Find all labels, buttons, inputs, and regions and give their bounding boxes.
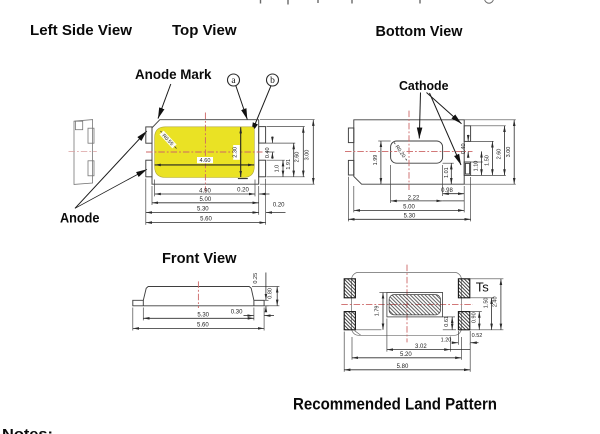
svg-text:1.79: 1.79 [375, 306, 381, 317]
svg-text:0.30: 0.30 [231, 309, 243, 315]
svg-text:4.90: 4.90 [199, 188, 211, 194]
svg-text:0.25: 0.25 [253, 273, 259, 284]
svg-text:5.00: 5.00 [200, 197, 212, 203]
svg-text:0.90: 0.90 [472, 312, 478, 323]
svg-text:1.50: 1.50 [483, 298, 489, 309]
svg-text:1.99: 1.99 [373, 155, 379, 166]
svg-text:0.20: 0.20 [273, 202, 285, 208]
svg-text:5.60: 5.60 [197, 323, 209, 329]
svg-text:Ts: Ts [476, 279, 490, 294]
svg-text:5.00: 5.00 [403, 205, 415, 211]
svg-text:5.30: 5.30 [197, 207, 209, 213]
svg-text:1.0: 1.0 [275, 165, 281, 173]
svg-text:Left Side View: Left Side View [30, 22, 132, 39]
svg-text:0.61: 0.61 [444, 316, 450, 327]
svg-text:5.30: 5.30 [404, 214, 416, 220]
svg-text:3.00: 3.00 [305, 150, 311, 161]
svg-text:1.50: 1.50 [484, 155, 490, 166]
svg-text:Recommended Land Pattern: Recommended Land Pattern [293, 395, 497, 413]
svg-text:Anode Mark: Anode Mark [135, 67, 212, 82]
svg-text:Cathode: Cathode [399, 78, 449, 93]
svg-text:5.30: 5.30 [197, 313, 209, 319]
svg-text:5.20: 5.20 [400, 352, 412, 358]
svg-text:0.52: 0.52 [472, 333, 483, 339]
svg-text:Top View: Top View [172, 22, 237, 39]
svg-text:0.98: 0.98 [441, 188, 453, 194]
svg-text:1.10: 1.10 [474, 161, 480, 172]
svg-text:Bottom View: Bottom View [376, 24, 464, 40]
svg-text:2.40: 2.40 [493, 296, 499, 307]
svg-text:b: b [270, 76, 275, 86]
svg-text:0.40: 0.40 [265, 147, 271, 158]
svg-text:3.02: 3.02 [415, 344, 427, 350]
svg-text:Front View: Front View [162, 251, 237, 267]
svg-text:4.60: 4.60 [200, 158, 211, 164]
svg-text:2.60: 2.60 [295, 152, 301, 163]
svg-text:0.20: 0.20 [237, 187, 249, 193]
svg-text:5.80: 5.80 [397, 364, 409, 370]
svg-text:1.20: 1.20 [441, 338, 452, 344]
svg-text:Notes:: Notes: [2, 426, 53, 434]
svg-text:0.80: 0.80 [268, 288, 274, 299]
svg-text:3.00: 3.00 [506, 147, 512, 158]
svg-text:5.60: 5.60 [200, 217, 212, 223]
svg-text:1.01: 1.01 [444, 167, 450, 178]
svg-text:1.91: 1.91 [286, 159, 292, 170]
svg-text:2.60: 2.60 [496, 149, 502, 160]
svg-text:Anode: Anode [60, 211, 100, 226]
svg-text:2.30: 2.30 [233, 147, 239, 158]
svg-text:2.22: 2.22 [408, 195, 420, 201]
svg-text:0.40: 0.40 [461, 143, 467, 154]
